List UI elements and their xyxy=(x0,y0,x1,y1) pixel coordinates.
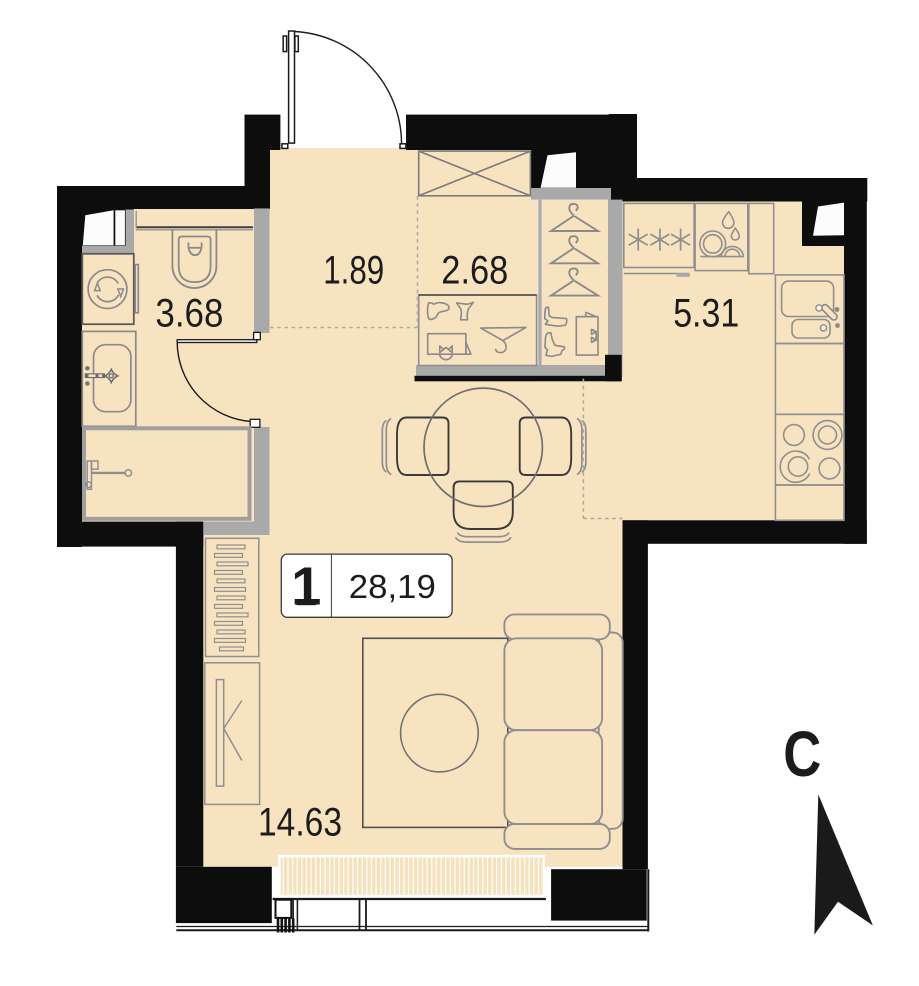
svg-text:3.68: 3.68 xyxy=(155,292,223,336)
svg-text:28,19: 28,19 xyxy=(349,568,436,605)
svg-text:2.68: 2.68 xyxy=(441,249,508,293)
svg-text:5.31: 5.31 xyxy=(673,292,739,336)
svg-text:1: 1 xyxy=(291,557,321,617)
svg-text:С: С xyxy=(783,718,821,790)
svg-text:14.63: 14.63 xyxy=(258,801,342,845)
svg-text:1.89: 1.89 xyxy=(323,249,384,293)
